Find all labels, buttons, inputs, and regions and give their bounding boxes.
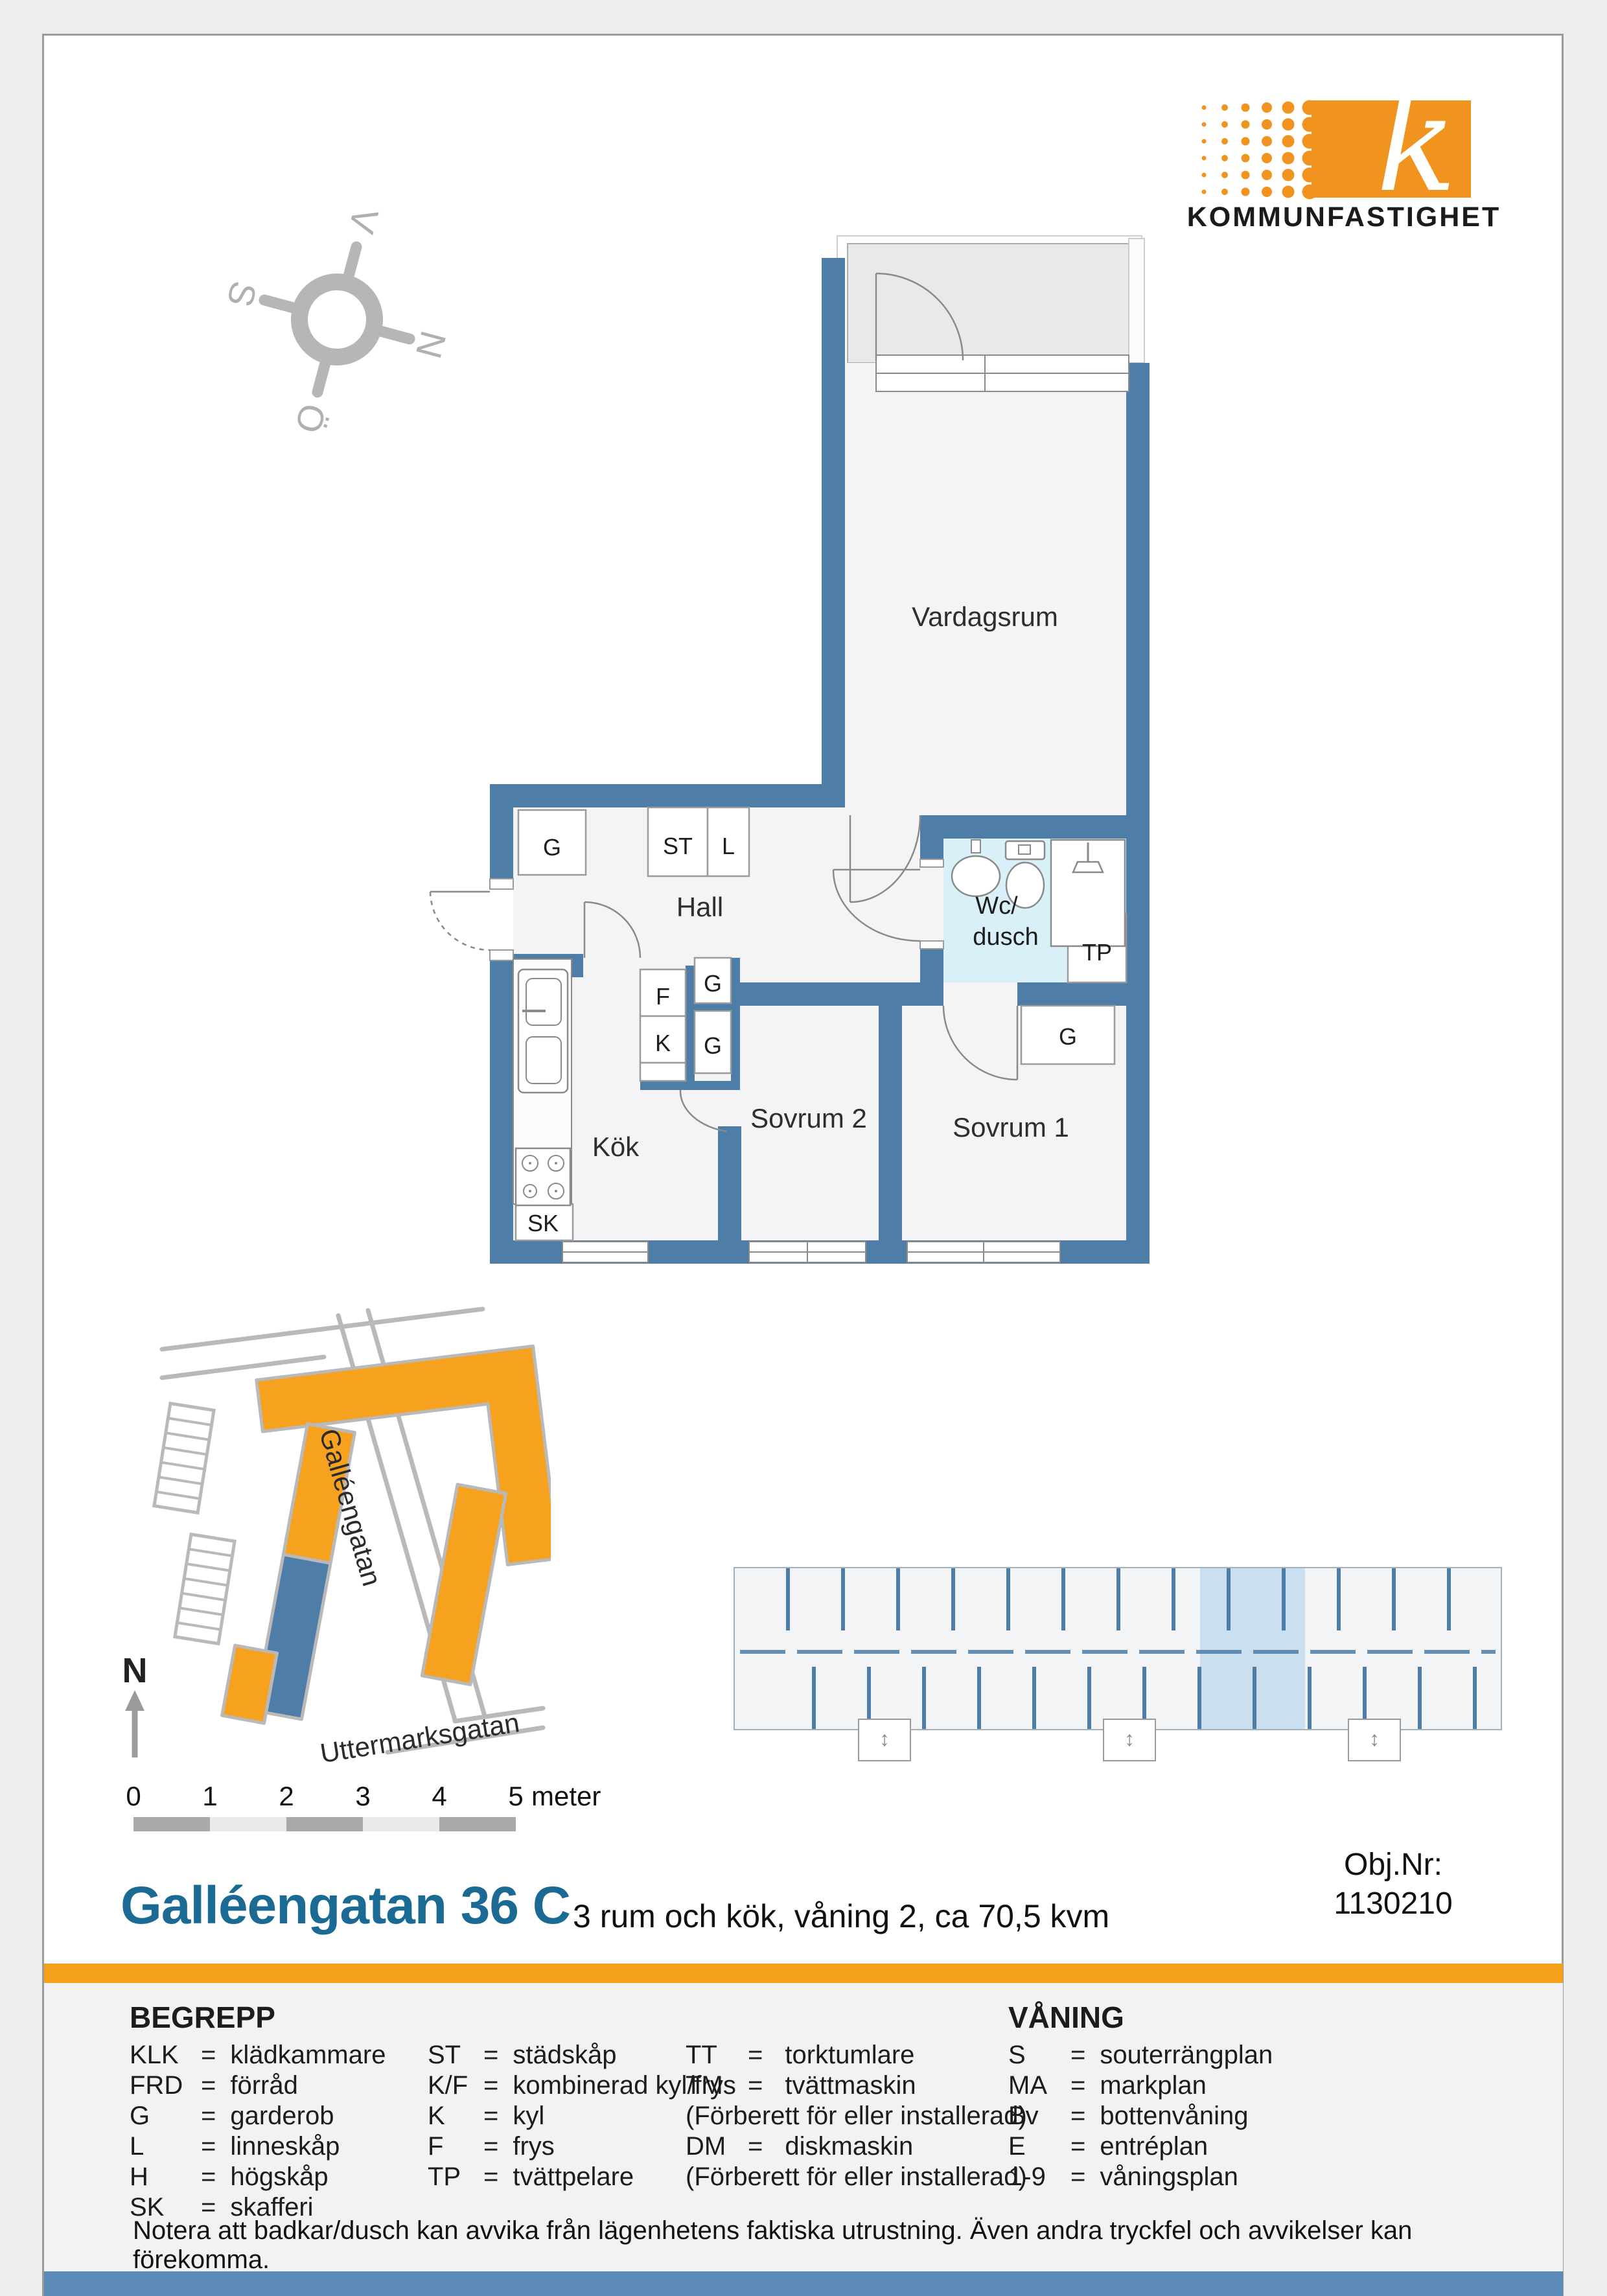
buildings	[222, 1346, 551, 1723]
scale-tick: 3	[355, 1781, 370, 1812]
north-label: N	[122, 1651, 148, 1690]
stairwell-icon: ↕	[858, 1719, 911, 1761]
label-f: F	[656, 983, 670, 1010]
label-wc-1: Wc/	[975, 892, 1018, 920]
legend-row: TT=torktumlare	[686, 2040, 1027, 2070]
legend-column-3: TT=torktumlare TM=tvättmaskin (Förberett…	[686, 2040, 1027, 2192]
label-kok: Kök	[592, 1131, 640, 1162]
kommunfastighet-logo: k KOMMUNFASTIGHET	[1153, 65, 1516, 259]
legend-note-row: (Förberett för eller installerad)	[686, 2101, 1027, 2131]
disclaimer-note: Notera att badkar/dusch kan avvika från …	[133, 2216, 1494, 2275]
label-l: L	[722, 833, 735, 859]
object-number-label: Obj.Nr:	[1309, 1846, 1477, 1884]
bottom-bar	[44, 2271, 1563, 2296]
legend-column-1: KLK=klädkammare FRD=förråd G=garderob L=…	[130, 2040, 386, 2223]
sink-faucet	[971, 840, 980, 853]
entrance-door	[430, 892, 490, 950]
vaning-column: S=souterrängplan MA=markplan Bv=bottenvå…	[1008, 2040, 1273, 2192]
stairwell-icon: ↕	[1348, 1719, 1401, 1761]
label-tp: TP	[1082, 939, 1112, 966]
vaning-title: VÅNING	[1008, 2000, 1124, 2035]
overview-corridor	[740, 1650, 1496, 1654]
compass-ring	[291, 273, 383, 365]
scale-tick: 1	[202, 1781, 217, 1812]
legend-note-row: (Förberett för eller installerad)	[686, 2162, 1027, 2192]
balcony-floor	[848, 244, 1129, 363]
page: { "logo": { "text": "KOMMUNFASTIGHET", "…	[0, 0, 1607, 2296]
logo-wordmark: KOMMUNFASTIGHET	[1187, 202, 1501, 233]
compass-v: V	[341, 203, 387, 238]
label-g-sovrum: G	[1059, 1023, 1077, 1050]
legend-row: FRD=förråd	[130, 2070, 386, 2101]
page-title: Galléengatan 36 C	[121, 1875, 570, 1936]
label-sovrum2: Sovrum 2	[750, 1103, 867, 1133]
scale-bar: 0 1 2 3 4 5 meter	[133, 1781, 717, 1839]
legend-row: TM=tvättmaskin	[686, 2070, 1027, 2101]
legend-row: DM=diskmaskin	[686, 2131, 1027, 2162]
legend-row: S=souterrängplan	[1008, 2040, 1273, 2070]
scale-tick: 4	[432, 1781, 446, 1812]
label-g2: G	[704, 1032, 722, 1059]
label-st: ST	[663, 833, 693, 859]
building-overview-plan: ↕ ↕ ↕	[734, 1567, 1502, 1730]
scale-tick: 2	[279, 1781, 294, 1812]
building-orange-right	[422, 1485, 505, 1685]
north-arrow-icon: N	[122, 1651, 148, 1757]
site-map: Galléengatan Uttermarksgatan N	[91, 1264, 551, 1776]
stairwell-icon: ↕	[1103, 1719, 1156, 1761]
vardagsrum-floor	[845, 363, 1126, 815]
legend-row: KLK=klädkammare	[130, 2040, 386, 2070]
label-hall: Hall	[676, 892, 723, 922]
kitchen-fixtures	[513, 959, 572, 1205]
page-subtitle: 3 rum och kök, våning 2, ca 70,5 kvm	[573, 1897, 1109, 1935]
legend-row: MA=markplan	[1008, 2070, 1273, 2101]
bathroom-sink	[952, 856, 1000, 896]
legend-row: L=linneskåp	[130, 2131, 386, 2162]
object-number-value: 1130210	[1309, 1884, 1477, 1923]
legend-row: H=högskåp	[130, 2162, 386, 2192]
street-label-uttermarksgatan: Uttermarksgatan	[318, 1707, 522, 1768]
label-wc-2: dusch	[973, 923, 1038, 951]
label-vardagsrum: Vardagsrum	[912, 601, 1058, 632]
legend-row: 1-9=våningsplan	[1008, 2162, 1273, 2192]
legend-row: E=entréplan	[1008, 2131, 1273, 2162]
legend-row: G=garderob	[130, 2101, 386, 2131]
legend-title: BEGREPP	[130, 2000, 275, 2035]
compass-s: S	[219, 277, 265, 311]
label-g1: G	[704, 970, 722, 997]
scale-tick: 0	[126, 1781, 141, 1812]
compass-o: Ö	[288, 400, 334, 437]
label-sk: SK	[527, 1210, 559, 1236]
scale-unit: meter	[531, 1781, 601, 1812]
scale-tick: 5	[508, 1781, 523, 1812]
orange-divider	[44, 1964, 1563, 1983]
apartment-floorplan: Vardagsrum Hall Wc/ dusch Kök Sovrum 2 S…	[421, 220, 1160, 1296]
parking-lots	[154, 1404, 235, 1644]
label-sovrum1: Sovrum 1	[953, 1112, 1069, 1142]
overview-walls-top	[735, 1568, 1501, 1630]
object-number: Obj.Nr: 1130210	[1309, 1846, 1477, 1923]
legend-row: Bv=bottenvåning	[1008, 2101, 1273, 2131]
label-g-hall: G	[543, 834, 561, 861]
label-k: K	[655, 1030, 671, 1056]
logo-k-letter: k	[1376, 67, 1457, 222]
